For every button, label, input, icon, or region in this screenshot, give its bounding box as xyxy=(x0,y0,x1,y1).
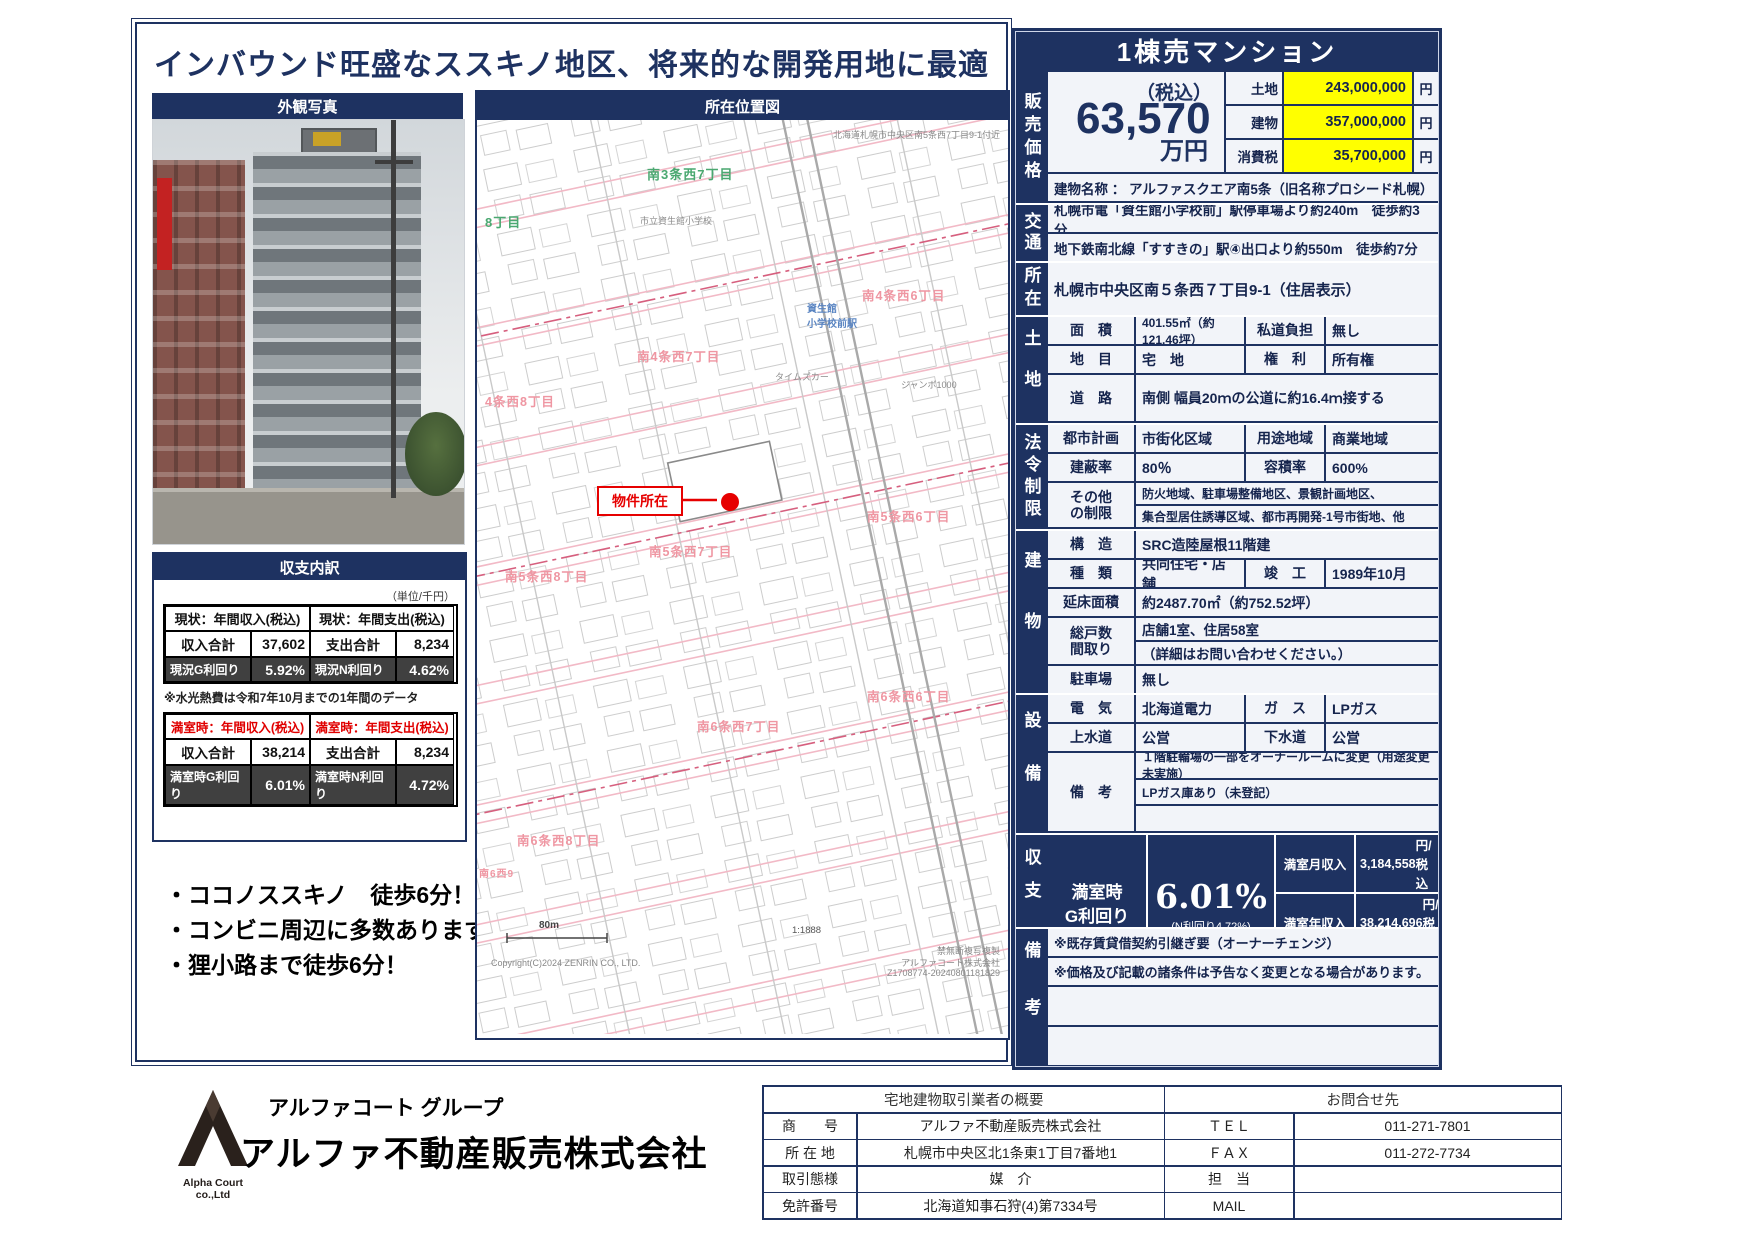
cell-value: 8,234 xyxy=(396,739,454,765)
cell-value: 集合型居住誘導区域、都市再開発-1号市街地、他 xyxy=(1136,506,1438,527)
contact-table: 宅地建物取引業者の概要 お問合せ先 商 号 アルファ不動産販売株式会社 ＴＥＬ … xyxy=(762,1085,1562,1220)
cell-value: 北海道電力 xyxy=(1136,695,1244,722)
contact-header: お問合せ先 xyxy=(1165,1087,1561,1112)
yield-monthly-value: 3,184,558 xyxy=(1360,857,1416,871)
cell-value: 北海道知事石狩(4)第7334号 xyxy=(858,1193,1164,1218)
address-text: 札幌市中央区南５条西７丁目9-1（住居表示） xyxy=(1048,263,1438,315)
cell-value: 店舗1室、住居58室 xyxy=(1136,618,1438,640)
map-district-label: 南4条西7丁目 xyxy=(637,346,720,365)
cell-label: ＦＡＸ xyxy=(1165,1140,1293,1165)
cell-value: 札幌市中央区北1条東1丁目7番地1 xyxy=(858,1140,1164,1165)
exterior-photo xyxy=(152,119,465,545)
full-income-header: 満室時：年間収入(税込) xyxy=(165,714,310,739)
location-map-box: 所在位置図 xyxy=(475,90,1010,1040)
cell-value: 4.72% xyxy=(396,765,454,805)
cell-value: 公営 xyxy=(1326,724,1438,751)
cell-label: 私道負担 xyxy=(1246,317,1324,344)
cell-label: 現況N利回り xyxy=(310,657,396,682)
cell-label: 用途地域 xyxy=(1246,425,1324,452)
cell-value xyxy=(1136,806,1438,831)
cell-label: 容積率 xyxy=(1246,454,1324,481)
cell-value: 37,602 xyxy=(251,631,310,657)
cell-value: 4.62% xyxy=(396,657,454,682)
yield-unit: 円/税込 xyxy=(1416,835,1439,892)
cell-value: 共同住宅・店舗 xyxy=(1136,560,1244,587)
remark-line: ※既存賃貸借契約引継ぎ要（オーナーチェンジ） xyxy=(1048,929,1438,956)
map-poi-label: 市立資生館小学校 xyxy=(640,214,712,227)
cell-label: 権 利 xyxy=(1246,346,1324,373)
map-district-label: 南3条西7丁目 xyxy=(647,164,733,183)
cell-value: 3,184,558 円/税込 xyxy=(1356,835,1439,892)
map-station-label: 資生館 小学校前駅 xyxy=(807,300,857,330)
cell-value: LPガス庫あり（未登記） xyxy=(1136,780,1438,805)
map-district-label: 4条西8丁目 xyxy=(485,391,555,410)
panel-title: 1棟売マンション xyxy=(1016,32,1438,72)
utility-note: ※水光熱費は令和7年10月までの1年間のデータ xyxy=(164,689,418,706)
cell-label: 備 考 xyxy=(1048,753,1134,831)
cell-label: その他 の制限 xyxy=(1048,483,1134,527)
cell-label: 支出合計 xyxy=(310,739,396,765)
section-label: 建物 xyxy=(1016,531,1046,693)
cell-value: 無し xyxy=(1136,666,1438,693)
price-tax-note: （税込） xyxy=(1136,78,1212,105)
access-line: 札幌市電「資生館小学校前」駅停車場より約240m 徒歩約3分 xyxy=(1048,205,1438,232)
cell-value: 約2487.70㎡（約752.52坪） xyxy=(1136,589,1438,616)
cell-label: 担 当 xyxy=(1165,1167,1293,1192)
cell-value xyxy=(1295,1167,1561,1192)
cell-value xyxy=(1295,1193,1561,1218)
section-remarks: 備考 ※既存賃貸借契約引継ぎ要（オーナーチェンジ） ※価格及び記載の諸条件は予告… xyxy=(1016,927,1438,1067)
cell-value: 媒 介 xyxy=(858,1167,1164,1192)
cell-label: 道 路 xyxy=(1048,375,1134,421)
full-occupancy-table: 満室時：年間収入(税込) 満室時：年間支出(税込) 収入合計 38,214 支出… xyxy=(163,712,458,807)
section-access: 交通 札幌市電「資生館小学校前」駅停車場より約240m 徒歩約3分 地下鉄南北線… xyxy=(1016,203,1438,261)
cell-value: SRC造陸屋根11階建 xyxy=(1136,531,1438,558)
cell-label: 総戸数 間取り xyxy=(1048,618,1134,664)
income-caption: 収支内訳 xyxy=(154,554,465,580)
yield-name-line: G利回り xyxy=(1065,905,1129,929)
cell-value: 6.01% xyxy=(251,765,310,805)
section-facilities: 設備 電 気 北海道電力 ガ ス LPガス 上水道 公営 下水道 公営 備 考 … xyxy=(1016,693,1438,833)
yield-rate: 6.01% xyxy=(1155,877,1267,916)
selling-points: ・ココノススキノ 徒歩6分！ ・コンビニ周辺に多数あります！ ・狸小路まで徒歩6… xyxy=(165,878,510,983)
cell-label: 消費税 xyxy=(1226,140,1282,172)
logo-text: Alpha Court co.,Ltd xyxy=(170,1177,256,1201)
price-unit: 万円 xyxy=(1160,131,1208,166)
cell-value: 所有権 xyxy=(1326,346,1438,373)
cell-value: 1989年10月 xyxy=(1326,560,1438,587)
map-district-label: 南6西9 xyxy=(479,865,514,880)
cell-value: 243,000,000 xyxy=(1284,72,1412,104)
cell-value: 38,214 xyxy=(251,739,310,765)
cell-label: 所 在 地 xyxy=(764,1140,856,1165)
cell-value: 357,000,000 xyxy=(1284,106,1412,138)
cell-value: 市街化区域 xyxy=(1136,425,1244,452)
unit-note: （単位/千円） xyxy=(386,588,455,604)
cell-label: 地 目 xyxy=(1048,346,1134,373)
photo-red-banner xyxy=(157,178,172,270)
cell-label: 現況G利回り xyxy=(165,657,251,682)
cell-label: ガ ス xyxy=(1246,695,1324,722)
cell-label: ＴＥＬ xyxy=(1165,1114,1293,1139)
cell-label: 建物 xyxy=(1226,106,1282,138)
map-district-label: 南6条西6丁目 xyxy=(867,686,950,705)
photo-tree xyxy=(405,412,465,496)
cell-label: 商 号 xyxy=(764,1114,856,1139)
section-label: 所在 xyxy=(1016,263,1046,315)
section-land: 土地 面 積 401.55㎡（約121.46坪） 私道負担 無し 地 目 宅 地… xyxy=(1016,315,1438,423)
broker-summary-header: 宅地建物取引業者の概要 xyxy=(764,1087,1164,1112)
remark-line xyxy=(1048,1027,1438,1065)
section-label: 土地 xyxy=(1016,317,1046,423)
section-legal: 法令制限 都市計画 市街化区域 用途地域 商業地域 建蔽率 80％ 容積率 60… xyxy=(1016,423,1438,529)
section-label: 設備 xyxy=(1016,695,1046,833)
cell-value: 011-271-7801 xyxy=(1295,1114,1561,1139)
cell-value: 80％ xyxy=(1136,454,1244,481)
photo-street xyxy=(153,488,464,544)
cell-value: 401.55㎡（約121.46坪） xyxy=(1136,317,1244,344)
map-scale-label: 80m xyxy=(539,920,559,931)
map-district-label: 南5条西7丁目 xyxy=(649,541,732,560)
cell-label: 満室時N利回り xyxy=(310,765,396,805)
section-address: 所在 札幌市中央区南５条西７丁目9-1（住居表示） xyxy=(1016,261,1438,315)
cell-label: 建蔽率 xyxy=(1048,454,1134,481)
cell-value: LPガス xyxy=(1326,695,1438,722)
company-name: アルファ不動産販売株式会社 xyxy=(240,1126,708,1177)
cell-value: 南側 幅員20ｍの公道に約16.4ｍ接する xyxy=(1136,375,1438,421)
map-district-label: 南5条西6丁目 xyxy=(867,506,950,525)
map-district-label: 8丁目 xyxy=(485,212,521,231)
section-label: 交通 xyxy=(1016,205,1046,261)
map-scale-ratio: 1:1888 xyxy=(792,925,821,936)
cell-label: 面 積 xyxy=(1048,317,1134,344)
cell-label: 種 類 xyxy=(1048,560,1134,587)
cell-label: 土地 xyxy=(1226,72,1282,104)
section-label: 法令制限 xyxy=(1016,425,1046,529)
group-name: アルファコート グループ xyxy=(268,1092,503,1122)
price-cell: 63,570 （税込） 万円 xyxy=(1048,72,1224,172)
photo-caption: 外観写真 xyxy=(152,93,463,119)
cell-label: 延床面積 xyxy=(1048,589,1134,616)
flyer-main-frame: インバウンド旺盛なススキノ地区、将来的な開発用地に最適 外観写真 収支内訳 （単… xyxy=(135,22,1008,1062)
map-district-label: 南4条西6丁目 xyxy=(862,285,945,304)
current-income-table: 現状：年間収入(税込) 現状：年間支出(税込) 収入合計 37,602 支出合計… xyxy=(163,604,458,684)
full-expense-header: 満室時：年間支出(税込) xyxy=(310,714,454,739)
map-poi-label: ジャンボ1000 xyxy=(901,378,957,391)
cell-label: 免許番号 xyxy=(764,1193,856,1218)
cell-value: （詳細はお問い合わせください。） xyxy=(1136,642,1438,664)
access-line: 地下鉄南北線「すすきの」駅④出口より約550m 徒歩約7分 xyxy=(1048,234,1438,261)
cell-label: 竣 工 xyxy=(1246,560,1324,587)
cell-label: 満室時G利回り xyxy=(165,765,251,805)
section-label: 備考 xyxy=(1016,929,1046,1067)
property-location-dot xyxy=(721,493,739,511)
cell-value: 5.92% xyxy=(251,657,310,682)
bullet-item: ・ココノススキノ 徒歩6分！ xyxy=(165,878,510,913)
cell-label: 下水道 xyxy=(1246,724,1324,751)
cell-label: 都市計画 xyxy=(1048,425,1134,452)
cell-value: 防火地域、駐車場整備地区、景観計画地区、 xyxy=(1136,483,1438,504)
cell-value: アルファ不動産販売株式会社 xyxy=(858,1114,1164,1139)
cell-unit: 円 xyxy=(1414,72,1438,104)
photo-rooftop-sign-panel xyxy=(313,132,341,146)
location-map: 南3条西7丁目 8丁目 南4条西6丁目 南4条西7丁目 4条西8丁目 南5条西6… xyxy=(477,120,1008,1038)
section-label: 販売価格 xyxy=(1016,72,1046,203)
cell-label: 電 気 xyxy=(1048,695,1134,722)
cell-value: 宅 地 xyxy=(1136,346,1244,373)
bullet-item: ・コンビニ周辺に多数あります！ xyxy=(165,913,510,948)
map-caption: 所在位置図 xyxy=(477,92,1008,120)
cell-value: 35,700,000 xyxy=(1284,140,1412,172)
current-expense-header: 現状：年間支出(税込) xyxy=(310,606,454,631)
yield-name-line: 満室時 xyxy=(1072,881,1123,905)
cell-value: 600% xyxy=(1326,454,1438,481)
cell-label: 駐車場 xyxy=(1048,666,1134,693)
map-poi-label: タイムズカー xyxy=(775,370,829,383)
cell-unit: 円 xyxy=(1414,140,1438,172)
map-vicinity-note: 北海道札幌市中央区南5条西7丁目9-1付近 xyxy=(833,128,1000,141)
map-code: Z1708774-20240801181829 xyxy=(887,968,1000,978)
bullet-item: ・狸小路まで徒歩6分！ xyxy=(165,948,510,983)
remark-line: ※価格及び記載の諸条件は予告なく変更となる場合があります。 xyxy=(1048,958,1438,985)
cell-label: 取引態様 xyxy=(764,1167,856,1192)
map-copyright: Copyright(C)2024 ZENRIN CO., LTD. xyxy=(491,958,640,968)
cell-value: 011-272-7734 xyxy=(1295,1140,1561,1165)
cell-value: 商業地域 xyxy=(1326,425,1438,452)
cell-label: 満室月収入 xyxy=(1276,835,1354,892)
section-building: 建物 構 造 SRC造陸屋根11階建 種 類 共同住宅・店舗 竣 工 1989年… xyxy=(1016,529,1438,693)
photo-pole-crossarm xyxy=(375,160,413,164)
income-expense-box: 収支内訳 （単位/千円） 現状：年間収入(税込) 現状：年間支出(税込) 収入合… xyxy=(152,552,467,842)
cell-value: １階駐輪場の一部をオーナールームに変更（用途変更未実施） xyxy=(1136,753,1438,778)
building-name: 建物名称 ： アルファスクエア南5条（旧名称プロシード札幌） xyxy=(1048,174,1438,201)
section-label: 収支 xyxy=(1016,835,1046,927)
remark-line xyxy=(1048,987,1438,1025)
map-district-label: 南6条西7丁目 xyxy=(697,716,780,735)
photo-utility-pole xyxy=(391,120,396,498)
cell-value: 公営 xyxy=(1136,724,1244,751)
property-location-label: 物件所在 xyxy=(597,486,683,516)
cell-label: 構 造 xyxy=(1048,531,1134,558)
cell-label: MAIL xyxy=(1165,1193,1293,1218)
property-detail-panel: 1棟売マンション 販売価格 63,570 （税込） 万円 土地 243,000,… xyxy=(1012,28,1442,1070)
current-income-header: 現状：年間収入(税込) xyxy=(165,606,310,631)
cell-label: 収入合計 xyxy=(165,631,251,657)
map-district-label: 南5条西8丁目 xyxy=(505,566,588,585)
map-district-label: 南6条西8丁目 xyxy=(517,830,600,849)
cell-label: 支出合計 xyxy=(310,631,396,657)
cell-unit: 円 xyxy=(1414,106,1438,138)
cell-label: 収入合計 xyxy=(165,739,251,765)
cell-label: 上水道 xyxy=(1048,724,1134,751)
cell-value: 無し xyxy=(1326,317,1438,344)
cell-value: 8,234 xyxy=(396,631,454,657)
headline: インバウンド旺盛なススキノ地区、将来的な開発用地に最適 xyxy=(137,40,1006,84)
section-price: 販売価格 63,570 （税込） 万円 土地 243,000,000 円 建物 xyxy=(1016,72,1438,203)
section-yield: 収支 満室時 G利回り 6.01% (N利回り4.72%) 満室月収入 3,18… xyxy=(1016,833,1438,927)
